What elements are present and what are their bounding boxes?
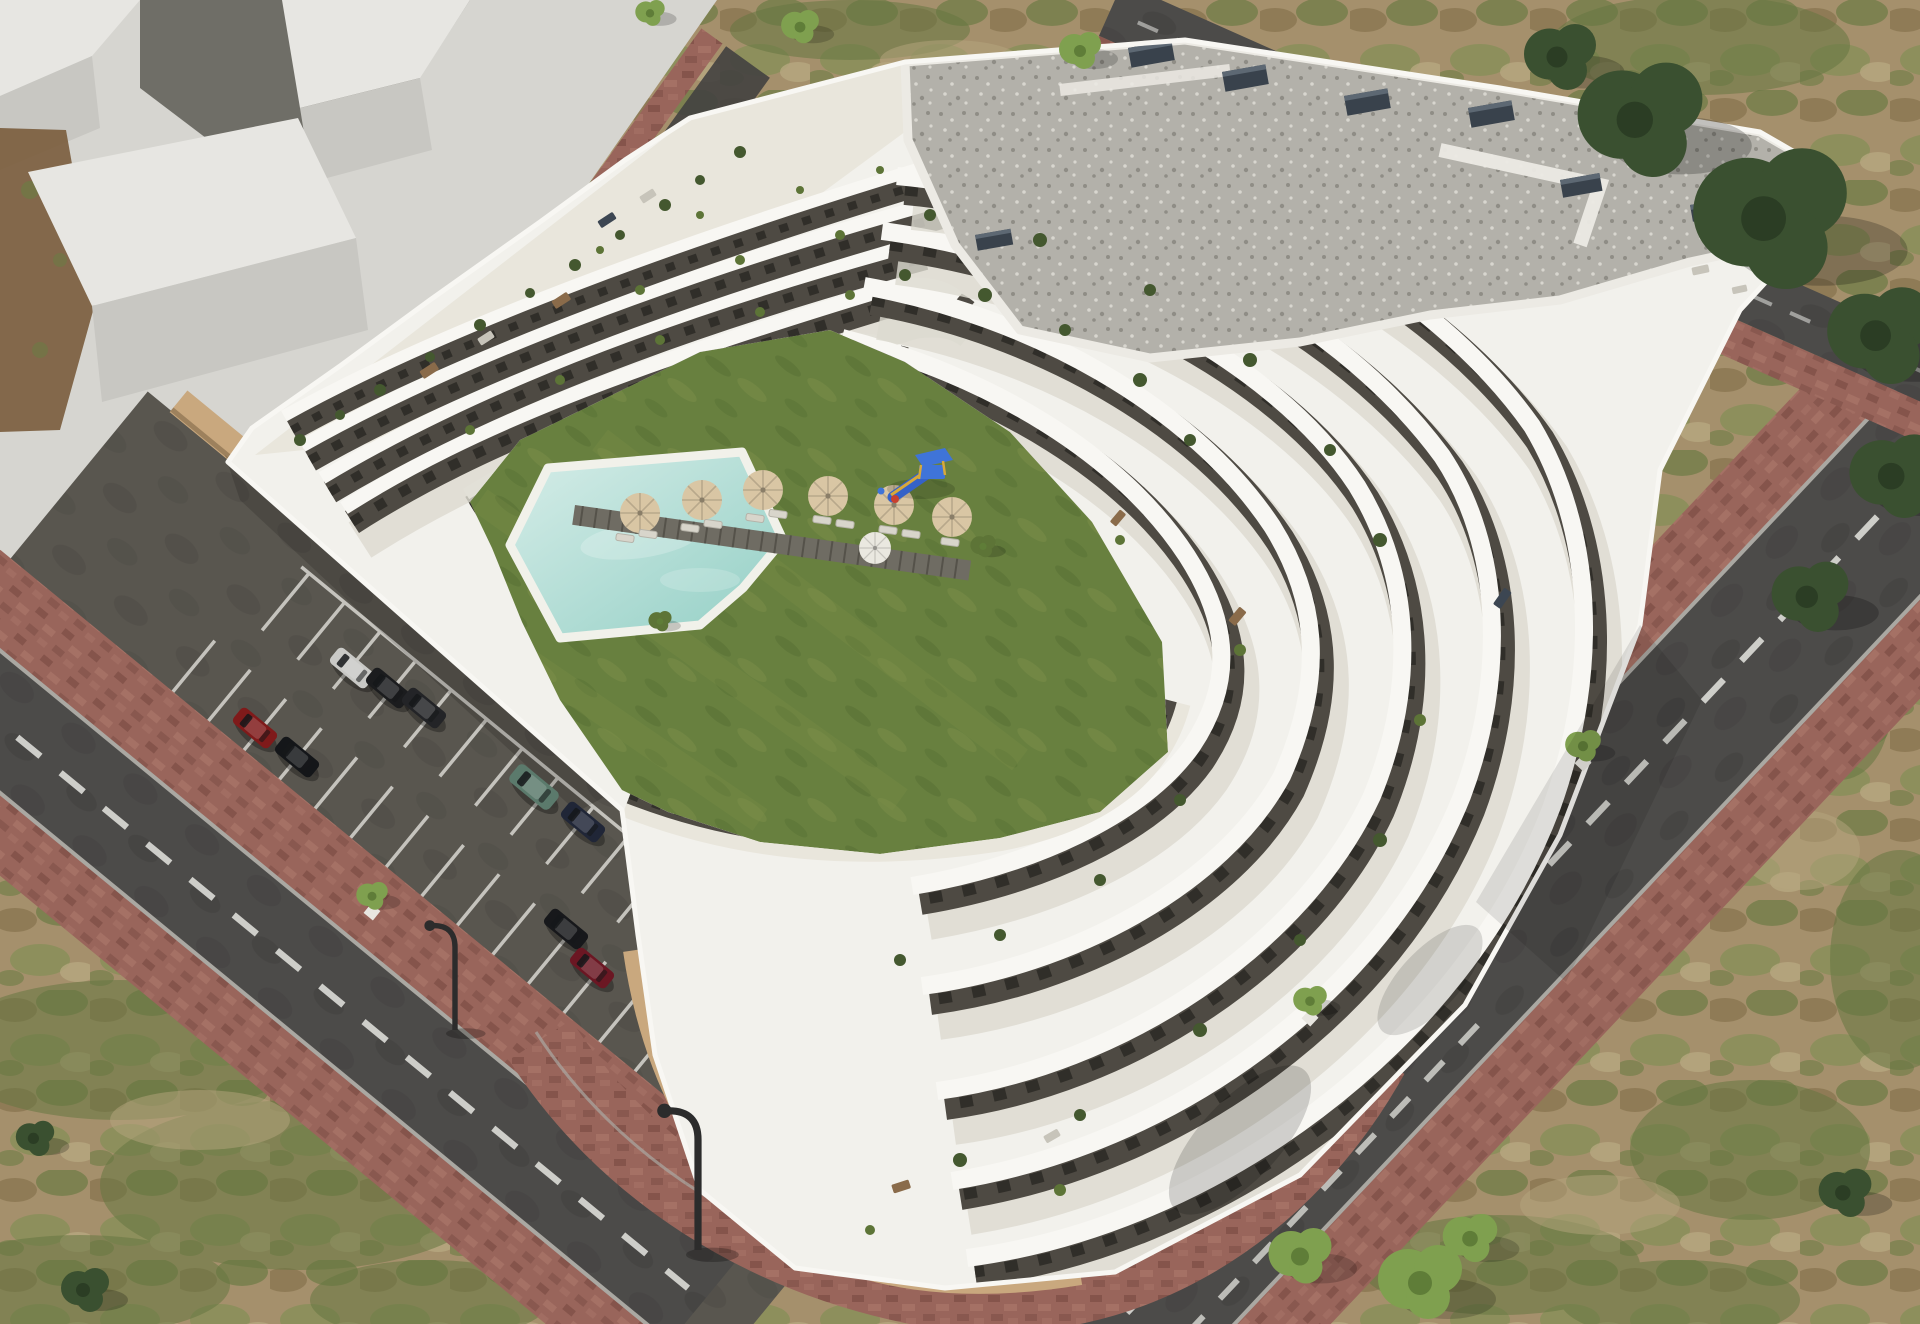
- render-canvas: [0, 0, 1920, 1324]
- pool-sparkle: [660, 568, 740, 592]
- aerial-architectural-render: [0, 0, 1920, 1324]
